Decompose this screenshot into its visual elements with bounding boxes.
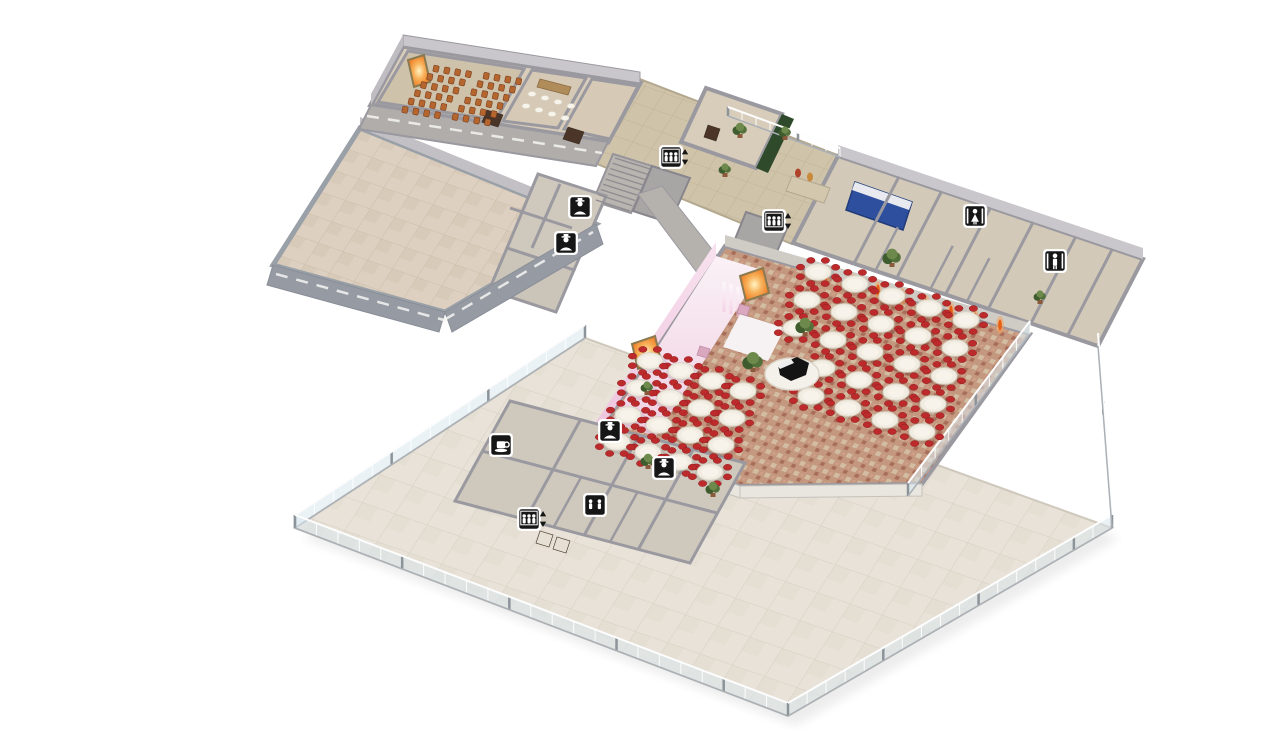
plant-pot — [890, 263, 895, 267]
auditorium-seat — [492, 92, 499, 100]
plant-leaves — [887, 249, 898, 260]
auditorium-seat — [483, 72, 490, 80]
table-chair — [659, 373, 667, 379]
auditorium-seat — [490, 110, 497, 118]
table-chair — [933, 350, 941, 356]
table-chair — [745, 420, 753, 426]
plant-pot — [783, 136, 788, 140]
table-chair — [799, 337, 807, 343]
icon-person-head — [767, 216, 770, 219]
table-chair — [848, 365, 856, 371]
foyer-table — [541, 96, 549, 101]
table-chair — [862, 365, 870, 371]
woman-leg — [973, 222, 974, 225]
table-chair — [723, 464, 731, 470]
auditorium-seat — [434, 111, 441, 119]
table-chair — [885, 366, 893, 372]
table-chair — [734, 447, 742, 453]
table-cloth — [692, 403, 709, 414]
table-chair — [858, 293, 866, 299]
table-chair — [859, 316, 867, 322]
table-chair — [684, 356, 692, 362]
auditorium-seat — [426, 73, 433, 81]
table-chair — [774, 330, 782, 336]
table-chair — [900, 424, 908, 430]
attendant-icon-4 — [652, 456, 676, 480]
table-chair — [896, 338, 904, 344]
table-chair — [785, 313, 793, 319]
auditorium-seat — [443, 67, 450, 75]
auditorium-seat — [429, 101, 436, 109]
table-chair — [756, 393, 764, 399]
table-chair — [881, 281, 889, 287]
foyer-table — [535, 108, 543, 113]
scene-root — [267, 35, 1143, 726]
restroom-icon — [583, 493, 607, 517]
table-chair — [944, 312, 952, 318]
table-chair — [648, 410, 656, 416]
table-chair — [811, 332, 819, 338]
table-chair — [946, 396, 954, 402]
table-chair — [668, 447, 676, 453]
table-chair — [968, 350, 976, 356]
plant-pot — [1038, 300, 1043, 304]
table-chair — [874, 405, 882, 411]
table-chair — [872, 372, 880, 378]
table-cloth — [924, 399, 941, 410]
table-chair — [679, 410, 687, 416]
table-chair — [885, 377, 893, 383]
auditorium-seat — [484, 119, 491, 127]
auditorium-seat — [469, 107, 476, 115]
table-chair — [796, 274, 804, 280]
table-chair — [907, 310, 915, 316]
auditorium-seat — [431, 83, 438, 91]
table-chair — [883, 344, 891, 350]
table-chair — [606, 407, 614, 413]
auditorium-seat — [412, 108, 419, 116]
table-chair — [724, 430, 732, 436]
staff-hat — [564, 234, 569, 236]
table-chair — [814, 405, 822, 411]
table-chair — [836, 325, 844, 331]
table-chair — [617, 390, 625, 396]
table-chair — [626, 454, 634, 460]
table-chair — [935, 424, 943, 430]
table-chair — [637, 417, 645, 423]
table-chair — [688, 474, 696, 480]
table-cloth — [641, 356, 658, 367]
auditorium-seat — [486, 100, 493, 108]
table-chair — [617, 400, 625, 406]
table-chair — [907, 300, 915, 306]
table-chair — [837, 393, 845, 399]
staff-hat — [608, 422, 613, 424]
auditorium-seat — [459, 79, 466, 87]
table-chair — [894, 316, 902, 322]
table-chair — [784, 337, 792, 343]
table-chair — [662, 410, 670, 416]
auditorium-seat — [503, 94, 510, 102]
plant-leaves — [721, 163, 728, 170]
icon-person-head — [522, 514, 525, 517]
table-chair — [637, 427, 645, 433]
table-chair — [848, 354, 856, 360]
foyer-table — [567, 104, 575, 109]
staff-head — [607, 425, 612, 430]
table-chair — [863, 412, 871, 418]
table-chair — [682, 447, 690, 453]
table-chair — [713, 457, 721, 463]
icon-person-body — [777, 220, 780, 226]
icon-person-body — [772, 220, 775, 226]
table-chair — [617, 380, 625, 386]
table-cloth — [876, 415, 893, 426]
table-chair — [922, 378, 930, 384]
table-cloth — [872, 319, 889, 330]
table-chair — [955, 305, 963, 311]
table-chair — [774, 320, 782, 326]
auditorium-seat — [477, 80, 484, 88]
table-chair — [825, 377, 833, 383]
auditorium-seat — [463, 115, 470, 123]
auditorium-seat — [465, 70, 472, 78]
table-chair — [628, 353, 636, 359]
woman-head — [973, 209, 978, 214]
table-chair — [699, 447, 707, 453]
table-chair — [911, 396, 919, 402]
table-chair — [905, 288, 913, 294]
table-chair — [648, 390, 656, 396]
table-chair — [925, 441, 933, 447]
foyer-table — [528, 92, 536, 97]
table-chair — [810, 285, 818, 291]
table-chair — [835, 360, 843, 366]
table-chair — [873, 429, 881, 435]
hall-front-wall-2 — [740, 484, 922, 498]
man-body — [1053, 259, 1057, 266]
table-chair — [847, 297, 855, 303]
planter-vase — [795, 169, 801, 178]
table-chair — [699, 437, 707, 443]
table-cloth — [887, 387, 904, 398]
table-chair — [690, 383, 698, 389]
auditorium-seat — [446, 95, 453, 103]
icon-person-head — [669, 152, 672, 155]
table-chair — [884, 309, 892, 315]
auditorium-seat — [419, 100, 426, 108]
auditorium-seat — [453, 87, 460, 95]
table-chair — [668, 427, 676, 433]
plant-leaves — [1036, 290, 1043, 297]
table-chair — [628, 363, 636, 369]
table-chair — [969, 329, 977, 335]
table-cloth — [798, 295, 815, 306]
table-chair — [789, 398, 797, 404]
table-chair — [859, 337, 867, 343]
table-cloth — [824, 335, 841, 346]
stall-wall — [982, 209, 984, 224]
table-chair — [844, 269, 852, 275]
table-chair — [895, 281, 903, 287]
table-chair — [648, 400, 656, 406]
table-chair — [721, 383, 729, 389]
auditorium-seat — [436, 93, 443, 101]
table-cloth — [703, 376, 720, 387]
table-chair — [942, 300, 950, 306]
table-chair — [811, 342, 819, 348]
icon-person-body — [665, 156, 668, 162]
plant-leaves — [736, 123, 744, 131]
auditorium-seat — [442, 85, 449, 93]
floor-plan-3d — [40, 16, 1280, 736]
foyer-table — [561, 116, 569, 121]
auditorium-seat — [504, 76, 511, 84]
mens-restroom-icon — [1043, 249, 1067, 273]
auditorium-seat — [487, 82, 494, 90]
auditorium-seat — [408, 98, 415, 106]
table-chair — [922, 368, 930, 374]
table-chair — [851, 393, 859, 399]
table-cloth — [712, 440, 729, 451]
table-chair — [868, 276, 876, 282]
table-chair — [870, 288, 878, 294]
auditorium-seat — [440, 103, 447, 111]
table-chair — [631, 400, 639, 406]
table-cloth — [861, 347, 878, 358]
table-cloth — [946, 343, 963, 354]
wall-sconce-flame — [996, 316, 1004, 334]
table-chair — [958, 357, 966, 363]
table-chair — [710, 410, 718, 416]
plant-pot — [751, 368, 756, 372]
table-chair — [746, 400, 754, 406]
man-head — [1053, 254, 1058, 259]
auditorium-seat — [509, 86, 516, 94]
womens-restroom-icon — [963, 204, 987, 228]
table-chair — [898, 412, 906, 418]
table-chair — [847, 321, 855, 327]
table-chair — [595, 444, 603, 450]
table-chair — [659, 363, 667, 369]
table-cloth — [734, 386, 751, 397]
auditorium-seat — [425, 91, 432, 99]
table-chair — [745, 410, 753, 416]
plant-leaves — [747, 352, 759, 364]
table-cloth — [723, 413, 740, 424]
icon-person-body — [669, 156, 672, 162]
table-chair — [756, 383, 764, 389]
table-chair — [837, 372, 845, 378]
icon-person-body — [532, 518, 535, 524]
table-chair — [846, 332, 854, 338]
foyer-table — [522, 104, 530, 109]
table-chair — [932, 317, 940, 323]
table-chair — [821, 257, 829, 263]
attendant-icon-2 — [554, 231, 578, 255]
table-chair — [851, 417, 859, 423]
table-cloth — [672, 366, 689, 377]
table-cloth — [909, 331, 926, 342]
table-cloth — [701, 467, 718, 478]
table-chair — [628, 373, 636, 379]
icon-person-head — [664, 152, 667, 155]
table-chair — [933, 361, 941, 367]
table-chair — [936, 413, 944, 419]
auditorium-seat — [515, 78, 522, 86]
table-chair — [826, 410, 834, 416]
stage-light-beam — [722, 282, 725, 312]
icon-person-head — [532, 514, 535, 517]
table-chair — [693, 420, 701, 426]
table-chair — [670, 356, 678, 362]
icon-person-body — [523, 518, 526, 524]
table-chair — [958, 333, 966, 339]
auditorium-seat — [452, 113, 459, 121]
table-chair — [888, 405, 896, 411]
table-chair — [642, 373, 650, 379]
table-chair — [679, 420, 687, 426]
table-chair — [931, 328, 939, 334]
table-chair — [732, 376, 740, 382]
table-chair — [822, 314, 830, 320]
table-chair — [833, 297, 841, 303]
table-chair — [895, 305, 903, 311]
table-chair — [811, 353, 819, 359]
auditorium-seat — [481, 90, 488, 98]
table-chair — [968, 340, 976, 346]
table-cloth — [661, 393, 678, 404]
table-chair — [911, 406, 919, 412]
icon-person-body — [527, 518, 530, 524]
table-chair — [690, 373, 698, 379]
staff-head — [563, 237, 568, 242]
table-chair — [925, 417, 933, 423]
table-chair — [935, 434, 943, 440]
table-chair — [922, 389, 930, 395]
table-chair — [884, 333, 892, 339]
table-chair — [837, 382, 845, 388]
table-chair — [704, 393, 712, 399]
attendant-icon-3 — [598, 419, 622, 443]
man-leg — [1056, 266, 1057, 269]
table-chair — [659, 383, 667, 389]
table-cloth — [835, 307, 852, 318]
plant-pot — [803, 332, 808, 336]
table-chair — [831, 264, 839, 270]
table-chair — [946, 406, 954, 412]
icon-person-body — [589, 503, 592, 509]
plant-leaves — [709, 482, 717, 490]
table-chair — [944, 322, 952, 328]
auditorium-seat — [498, 84, 505, 92]
railing-top — [1098, 333, 1112, 515]
table-cloth — [957, 315, 974, 326]
table-chair — [900, 434, 908, 440]
stall-wall — [1047, 254, 1049, 269]
floor-plan-figure — [40, 16, 1280, 736]
table-chair — [836, 417, 844, 423]
table-chair — [885, 356, 893, 362]
table-chair — [896, 349, 904, 355]
table-cloth — [809, 267, 826, 278]
table-chair — [710, 420, 718, 426]
table-cloth — [839, 403, 856, 414]
icon-person-body — [768, 220, 771, 226]
table-chair — [863, 422, 871, 428]
table-chair — [979, 312, 987, 318]
table-cloth — [913, 427, 930, 438]
table-chair — [639, 346, 647, 352]
table-chair — [668, 437, 676, 443]
plant-leaves — [781, 126, 788, 133]
auditorium-seat — [497, 102, 504, 110]
table-cloth — [681, 430, 698, 441]
table-chair — [947, 385, 955, 391]
table-cloth — [802, 391, 819, 402]
icon-person-head — [772, 216, 775, 219]
table-chair — [699, 457, 707, 463]
table-chair — [870, 298, 878, 304]
stall-wall — [1062, 254, 1064, 269]
auditorium-seat — [475, 99, 482, 107]
table-chair — [870, 309, 878, 315]
staff-hat — [662, 459, 667, 461]
table-cloth — [650, 420, 667, 431]
table-chair — [944, 333, 952, 339]
table-chair — [785, 292, 793, 298]
table-chair — [710, 430, 718, 436]
table-chair — [873, 361, 881, 367]
plant-pot — [645, 391, 650, 395]
foyer-table — [554, 100, 562, 105]
auditorium-seat — [470, 89, 477, 97]
table-chair — [909, 384, 917, 390]
table-cloth — [883, 291, 900, 302]
auditorium-seat — [473, 117, 480, 125]
table-chair — [936, 389, 944, 395]
auditorium-seat — [423, 110, 430, 118]
table-chair — [833, 286, 841, 292]
man-leg — [1053, 266, 1054, 269]
staff-head — [577, 201, 582, 206]
table-cloth — [898, 359, 915, 370]
table-chair — [947, 361, 955, 367]
table-chair — [836, 349, 844, 355]
table-chair — [848, 344, 856, 350]
icon-person-head — [777, 216, 780, 219]
table-chair — [826, 400, 834, 406]
auditorium-seat — [458, 105, 465, 113]
table-chair — [874, 384, 882, 390]
railing-base — [1098, 346, 1112, 528]
table-chair — [698, 481, 706, 487]
auditorium-seat — [480, 109, 487, 117]
flame — [998, 320, 1002, 331]
table-chair — [651, 437, 659, 443]
icon-person-body — [674, 156, 677, 162]
table-chair — [810, 309, 818, 315]
table-cloth — [619, 410, 636, 421]
table-chair — [861, 400, 869, 406]
table-chair — [715, 366, 723, 372]
table-chair — [907, 321, 915, 327]
plant-leaves — [643, 381, 650, 388]
auditorium-seat — [420, 81, 427, 89]
table-chair — [873, 337, 881, 343]
table-chair — [822, 325, 830, 331]
auditorium-seat — [433, 65, 440, 73]
